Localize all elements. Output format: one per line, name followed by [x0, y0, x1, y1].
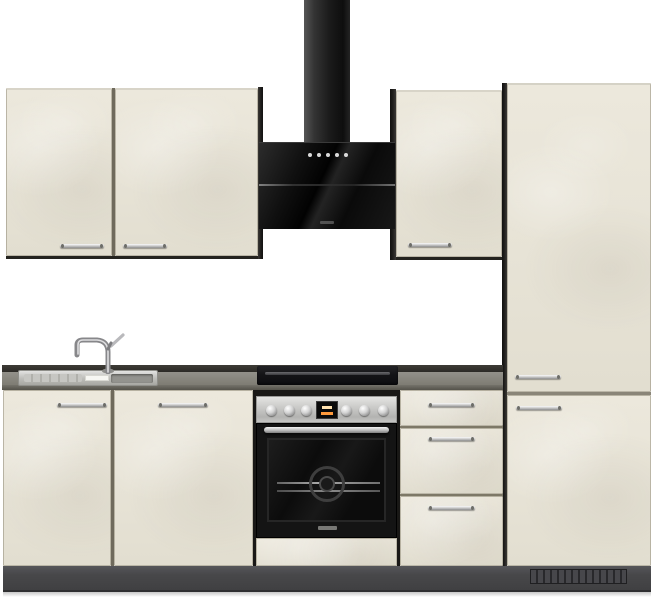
oven-control-panel	[256, 396, 397, 423]
drawer-3-handle	[428, 506, 475, 510]
hood-chimney	[304, 0, 350, 144]
wall-cabinet-left-door-2-handle	[123, 244, 167, 248]
wall-cabinet-right-door-handle	[408, 243, 452, 247]
hood-touch-button-2	[317, 153, 321, 157]
kitchen-product-image	[0, 0, 651, 600]
wall-cabinet-left-door-1-handle	[60, 244, 104, 248]
oven-knob-1	[266, 405, 277, 416]
tall-cabinet-upper-door	[507, 83, 651, 392]
wall-cabinet-left-door-2	[115, 88, 258, 256]
plinth	[3, 566, 651, 592]
oven-display-segment-top	[322, 406, 332, 409]
oven-plinth-panel	[256, 538, 397, 566]
sink-basin	[111, 374, 153, 383]
tall-cabinet-lower-door-handle	[516, 406, 562, 410]
wall-cabinet-left-door-1	[6, 88, 112, 256]
hood-body	[259, 142, 395, 229]
oven-handle	[264, 427, 389, 433]
oven-knob-5	[359, 405, 370, 416]
sink-sticker	[85, 375, 109, 381]
oven-knob-6	[378, 405, 389, 416]
hood-touch-button-3	[326, 153, 330, 157]
drawer-1-handle	[428, 403, 475, 407]
hood-brand-logo	[320, 221, 334, 224]
oven-door-window	[267, 438, 386, 522]
drawer-unit	[400, 390, 503, 566]
oven-display	[316, 401, 338, 419]
hood-touch-button-1	[308, 153, 312, 157]
oven-display-segment-bottom	[321, 412, 333, 415]
drawer-1	[400, 390, 503, 426]
base-cabinet-door-2	[114, 390, 253, 566]
base-cabinet-door-1	[3, 390, 111, 566]
oven-knob-4	[341, 405, 352, 416]
tall-cabinet-lower-door	[507, 395, 651, 566]
sink-drainer	[24, 374, 82, 382]
oven-knob-3	[301, 405, 312, 416]
hood-touch-button-4	[335, 153, 339, 157]
oven-knob-2	[284, 405, 295, 416]
floor-shadow	[3, 592, 651, 597]
plinth-vent-grille	[530, 569, 627, 584]
tall-cabinet	[502, 83, 651, 566]
wall-cabinet-left	[6, 87, 263, 259]
faucet	[58, 328, 130, 374]
base-cabinet-left	[3, 390, 253, 566]
base-cabinet-door-2-handle	[158, 403, 208, 407]
cooktop-front-bevel	[265, 372, 390, 375]
oven-brand-logo	[318, 526, 337, 530]
tall-cabinet-upper-door-handle	[515, 375, 561, 379]
wall-cabinet-right	[390, 89, 502, 260]
wall-cabinet-right-door	[396, 90, 502, 257]
drawer-2-handle	[428, 437, 475, 441]
oven	[256, 396, 397, 538]
oven-door	[256, 423, 397, 538]
cooktop	[257, 366, 398, 385]
hood-glass-seam	[259, 184, 395, 186]
oven-fan-hub	[319, 476, 335, 492]
base-cabinet-door-1-handle	[57, 403, 107, 407]
hood-touch-button-5	[344, 153, 348, 157]
